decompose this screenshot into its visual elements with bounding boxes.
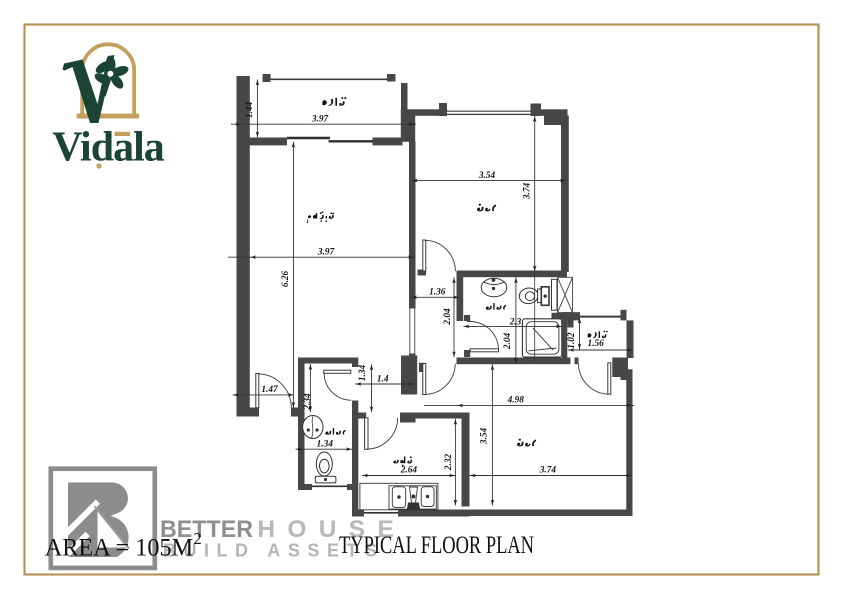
svg-text:TYPICAL FLOOR PLAN: TYPICAL FLOOR PLAN [339, 532, 534, 559]
svg-text:1.56: 1.56 [588, 339, 605, 349]
svg-text:4.98: 4.98 [507, 396, 525, 406]
svg-text:3.97: 3.97 [317, 248, 335, 258]
svg-text:2.04: 2.04 [443, 308, 453, 326]
svg-text:3.74: 3.74 [523, 183, 533, 201]
svg-text:1.36: 1.36 [429, 288, 446, 298]
svg-text:2.64: 2.64 [400, 465, 418, 475]
svg-text:1.47: 1.47 [261, 385, 278, 395]
svg-text:Vidala: Vidala [52, 125, 164, 171]
svg-text:3.54: 3.54 [480, 428, 490, 446]
svg-text:2.3: 2.3 [509, 317, 522, 327]
svg-text:1.44: 1.44 [245, 102, 255, 119]
svg-text:AREA = 105M: AREA = 105M [45, 535, 194, 562]
svg-text:6.26: 6.26 [281, 271, 291, 288]
svg-text:2.34: 2.34 [303, 393, 313, 411]
svg-text:1.4: 1.4 [377, 375, 389, 385]
svg-text:2.04: 2.04 [503, 333, 513, 351]
svg-text:1.34: 1.34 [317, 440, 334, 450]
svg-text:3.54: 3.54 [478, 171, 496, 181]
svg-text:2: 2 [194, 529, 202, 548]
svg-text:3.74: 3.74 [539, 465, 557, 475]
svg-text:1.02: 1.02 [567, 332, 577, 349]
svg-text:3.97: 3.97 [311, 114, 329, 124]
svg-text:1.34: 1.34 [358, 365, 368, 382]
svg-text:2.32: 2.32 [444, 454, 454, 472]
